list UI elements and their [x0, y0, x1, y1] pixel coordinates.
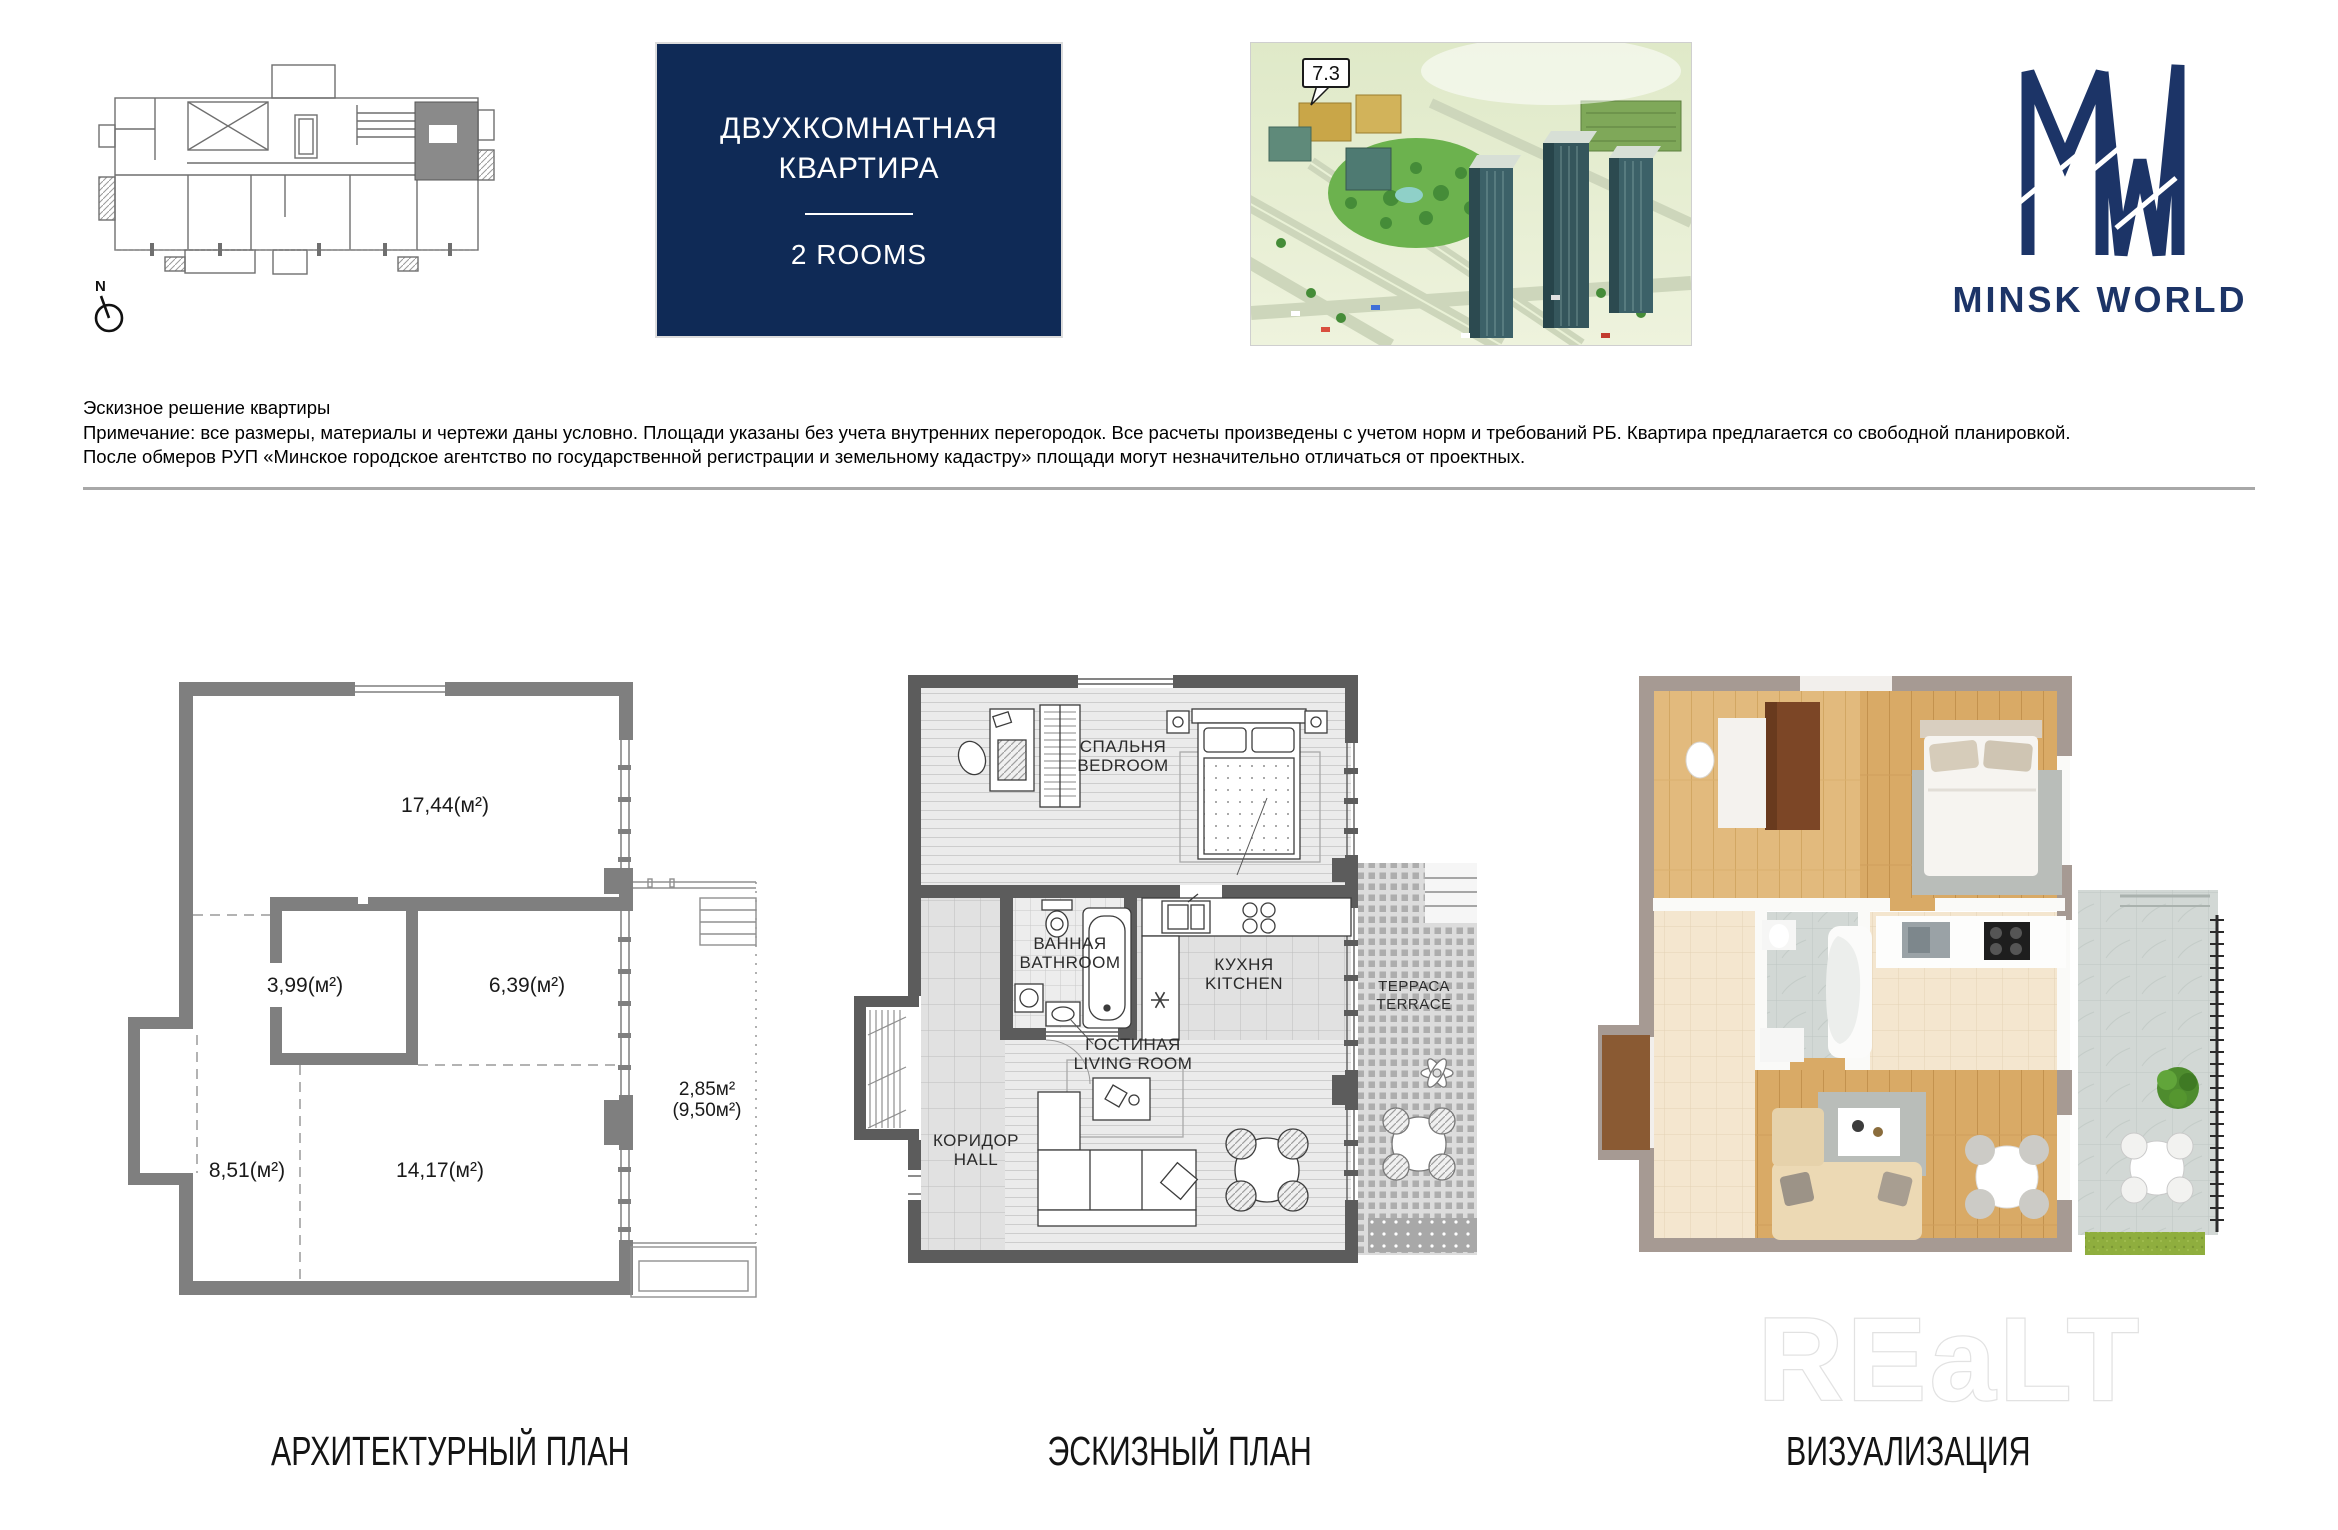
area-inner-room: 3,99(м²) [267, 974, 343, 997]
header-divider [83, 487, 2255, 490]
label-bathroom-ru: ВАННАЯ [1033, 934, 1106, 953]
visualization-render [1560, 640, 2260, 1265]
area-bottom-left: 8,51(м²) [209, 1159, 285, 1182]
flyer-page: N ДВУХКОМНАТНАЯ КВАРТИРА 2 ROOMS [0, 0, 2338, 1530]
compass-north-label: N [95, 278, 106, 295]
area-right-room: 6,39(м²) [489, 974, 565, 997]
label-hall-ru: КОРИДОР [933, 1131, 1019, 1150]
caption-architectural-plan: АРХИТЕКТУРНЫЙ ПЛАН [130, 1428, 770, 1475]
arch-area-labels: 17,44(м²) 3,99(м²) 6,39(м²) 8,51(м²) 14,… [209, 794, 742, 1182]
label-hall-en: HALL [954, 1150, 999, 1169]
brand-wordmark: MINSK WORLD [1953, 279, 2248, 320]
caption-visualization: ВИЗУАЛИЗАЦИЯ [1588, 1428, 2228, 1475]
watermark-text: REaLT [1758, 1294, 2143, 1426]
architectural-plan: 17,44(м²) 3,99(м²) 6,39(м²) 8,51(м²) 14,… [100, 645, 780, 1305]
area-top-room: 17,44(м²) [401, 794, 489, 817]
sketch-plan: СПАЛЬНЯ BEDROOM ВАННАЯ BATHROOM КУХНЯ KI… [850, 640, 1500, 1270]
disclaimer-block: Эскизное решение квартиры Примечание: вс… [83, 396, 2268, 470]
area-terrace-actual: 2,85м² [679, 1079, 735, 1100]
aerial-pond [1395, 187, 1423, 203]
north-compass-icon: N [95, 278, 122, 331]
unit-type-line2: КВАРТИРА [778, 149, 939, 189]
title-card-divider [805, 213, 913, 215]
unit-type-subtitle: 2 ROOMS [791, 239, 927, 271]
area-bottom-room: 14,17(м²) [396, 1159, 484, 1182]
aerial-render: 7.3 [1250, 42, 1692, 346]
disclaimer-line2: Примечание: все размеры, материалы и чер… [83, 421, 2268, 446]
label-bedroom-en: BEDROOM [1077, 756, 1168, 775]
label-bathroom-en: BATHROOM [1020, 953, 1121, 972]
label-living-en: LIVING ROOM [1074, 1054, 1193, 1073]
disclaimer-line3: После обмеров РУП «Минское городское аге… [83, 445, 2268, 470]
mw-monogram-icon [2020, 65, 2178, 255]
label-kitchen-ru: КУХНЯ [1214, 955, 1273, 974]
balcony-hatch [868, 1010, 906, 1128]
label-kitchen-en: KITCHEN [1205, 974, 1283, 993]
caption-sketch-plan: ЭСКИЗНЫЙ ПЛАН [860, 1428, 1500, 1475]
arch-windows [355, 686, 629, 1240]
storey-site-plan: N [55, 25, 525, 355]
realt-watermark: REaLT [1752, 1292, 2272, 1427]
label-bedroom-ru: СПАЛЬНЯ [1080, 737, 1167, 756]
label-living-ru: ГОСТИНАЯ [1085, 1035, 1181, 1054]
label-terrace-ru: ТЕРРАСА [1378, 978, 1450, 995]
unit-type-card: ДВУХКОМНАТНАЯ КВАРТИРА 2 ROOMS [655, 42, 1063, 338]
label-terrace-en: TERRACE [1376, 996, 1451, 1013]
area-terrace-full: (9,50м²) [672, 1100, 741, 1121]
disclaimer-line1: Эскизное решение квартиры [83, 396, 2268, 421]
highlighted-unit-detail [429, 125, 457, 143]
aerial-towers [1469, 131, 1661, 338]
brand-logo: MINSK WORLD [1930, 50, 2270, 330]
building-number-label: 7.3 [1312, 63, 1340, 85]
unit-type-line1: ДВУХКОМНАТНАЯ [720, 109, 998, 149]
